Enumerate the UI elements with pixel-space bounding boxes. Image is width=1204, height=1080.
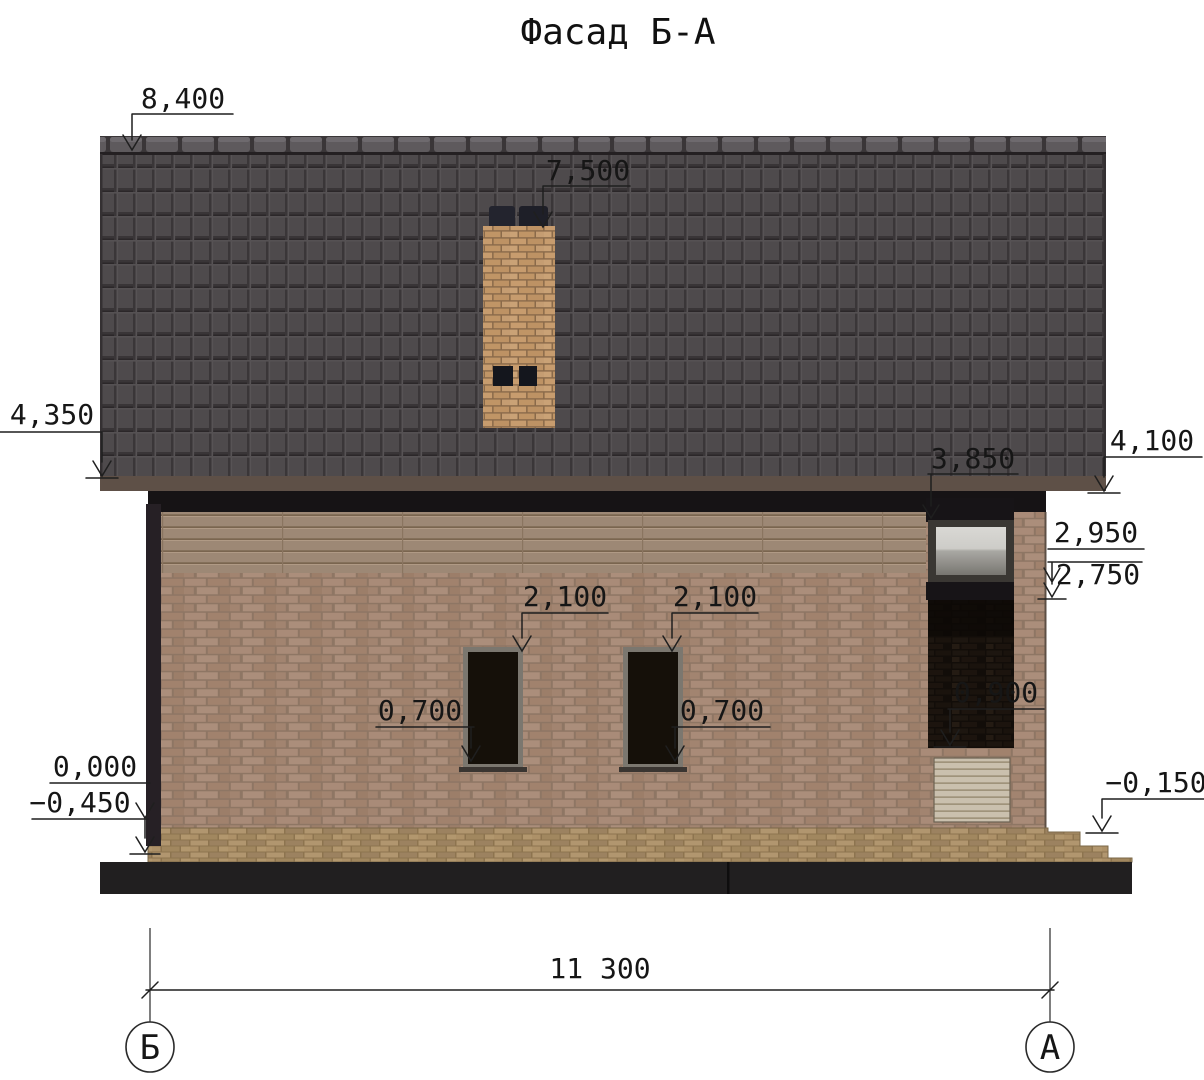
foundation-strip [100, 862, 1132, 894]
attic-window-glass [936, 527, 1006, 575]
drawing-title: Фасад Б-А [520, 12, 715, 53]
chimney-body [483, 226, 555, 428]
level-chimney-text: 7,500 [546, 154, 630, 187]
floor-level-text: 0,000 [53, 750, 137, 783]
window-right-sill [619, 767, 687, 772]
wall-right-edge [1045, 512, 1047, 860]
roof-right-rake [1104, 154, 1107, 478]
facade-drawing-page: Фасад Б-А [0, 0, 1204, 1080]
window-left-sill [459, 767, 527, 772]
chimney-vent-right [519, 366, 537, 386]
window-left-glass [468, 652, 518, 764]
chimney-vent-left [493, 366, 513, 386]
chimney [483, 206, 555, 428]
wood-siding-band [148, 512, 926, 573]
window-right [619, 647, 687, 772]
level-mark-floor: 0,000 [50, 750, 150, 783]
porch-level-text: −0,150 [1105, 766, 1204, 799]
ground-level-text: −0,450 [29, 786, 130, 819]
roof-gutter [100, 476, 1106, 491]
roof [100, 136, 1106, 478]
walls [148, 512, 1047, 860]
level-right-upper-text: 2,950 [1054, 516, 1138, 549]
window-sill-left-text: 0,700 [378, 694, 462, 727]
window-head-left-text: 2,100 [523, 580, 607, 613]
roof-slope [100, 154, 1106, 478]
level-roof-over-window-text: 3,850 [931, 442, 1015, 475]
entrance-bay [926, 498, 1014, 822]
foundation-joint [727, 862, 730, 894]
roof-left-rake [100, 154, 103, 478]
window-right-glass [628, 652, 678, 764]
roof-ridge-caps [100, 136, 1106, 154]
overall-width-text: 11 300 [549, 952, 650, 985]
level-right-lower-text: 2,750 [1056, 558, 1140, 591]
level-eave-right-text: 4,100 [1110, 424, 1194, 457]
elevation-drawing: Фасад Б-А [0, 0, 1204, 1080]
axis-left-label: Б [140, 1028, 160, 1068]
window-left [459, 647, 527, 772]
pavement-and-steps [148, 828, 1132, 862]
window-sill-right-text: 0,700 [680, 694, 764, 727]
attic-window-sill-band [926, 582, 1014, 600]
entry-opening-text: 0,900 [954, 676, 1038, 709]
window-head-right-text: 2,100 [673, 580, 757, 613]
downspout [146, 504, 161, 846]
entrance-recess-shadow [928, 600, 1014, 636]
vent-panel [934, 758, 1010, 822]
level-eave-left-text: 4,350 [10, 398, 94, 431]
eave-shadow-band [148, 491, 1046, 512]
level-mark-right-upper: 2,950 [1048, 516, 1144, 549]
attic-window-lintel [926, 498, 1014, 522]
level-ridge-text: 8,400 [141, 82, 225, 115]
axis-right-label: А [1040, 1028, 1060, 1068]
